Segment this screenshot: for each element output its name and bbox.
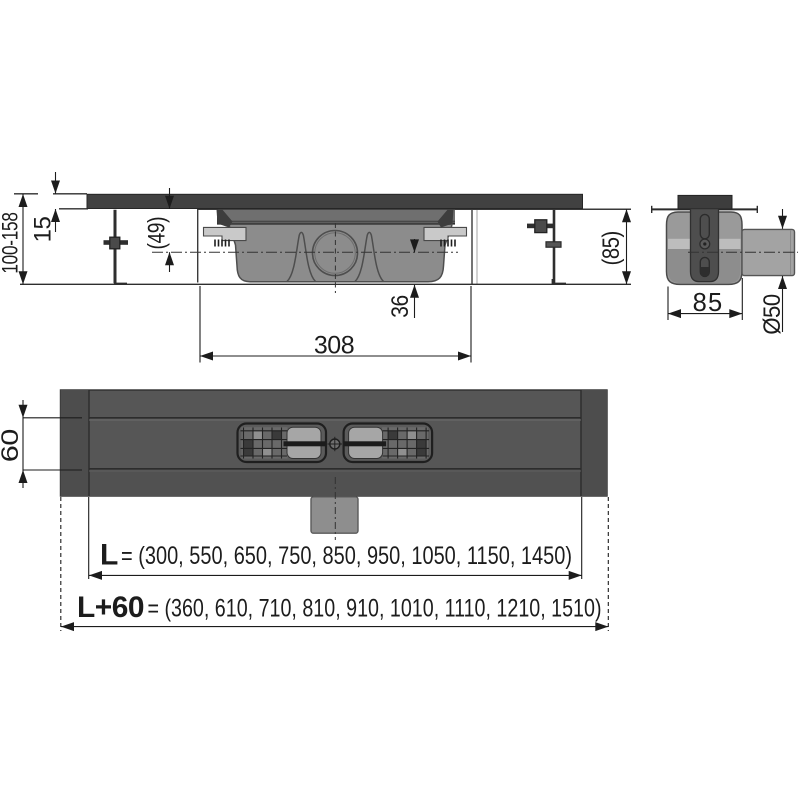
svg-text:(49): (49) (142, 217, 170, 250)
svg-text:L: L (100, 539, 118, 572)
svg-text:15: 15 (30, 217, 57, 243)
svg-text:85: 85 (693, 289, 724, 317)
svg-text:L+60: L+60 (77, 591, 144, 624)
svg-text:60: 60 (0, 429, 23, 462)
svg-text:(85): (85) (597, 231, 624, 265)
svg-text:Ø50: Ø50 (758, 294, 785, 334)
svg-text:= (300, 550, 650, 750, 850, 95: = (300, 550, 650, 750, 850, 950, 1050, 1… (121, 542, 572, 570)
svg-text:36: 36 (387, 295, 414, 318)
svg-text:308: 308 (314, 332, 354, 360)
svg-text:= (360, 610, 710, 810, 910, 10: = (360, 610, 710, 810, 910, 1010, 1110, … (148, 595, 602, 623)
svg-text:100-158: 100-158 (0, 212, 23, 274)
